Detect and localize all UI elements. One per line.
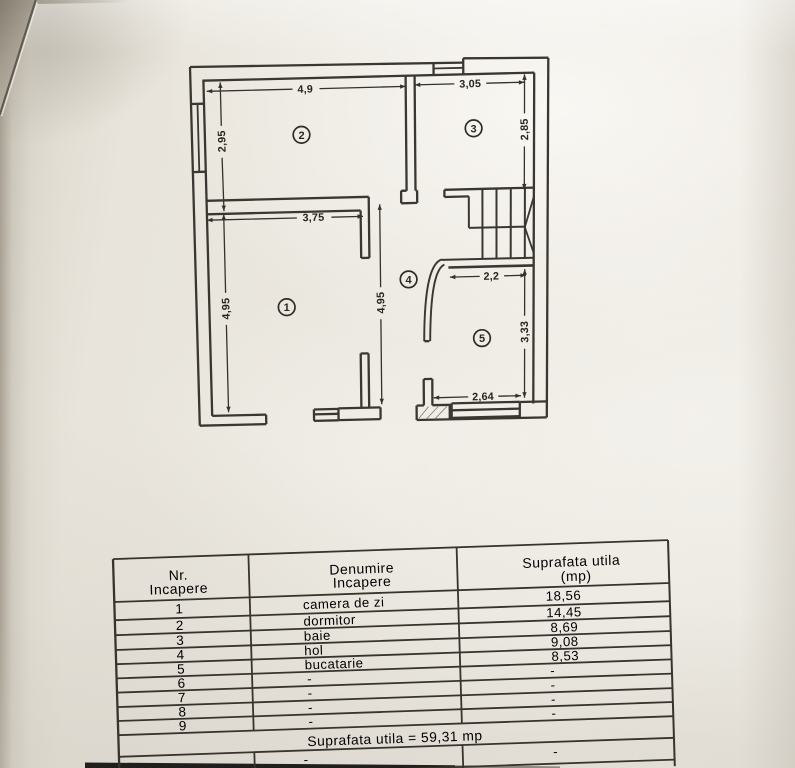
svg-text:9: 9	[179, 718, 188, 733]
svg-text:8,69: 8,69	[550, 619, 578, 635]
svg-text:18,56: 18,56	[545, 588, 581, 604]
svg-text:4: 4	[406, 274, 413, 286]
svg-text:1: 1	[284, 302, 290, 314]
svg-text:4,95: 4,95	[220, 298, 233, 320]
svg-text:5: 5	[177, 661, 186, 676]
svg-text:-: -	[303, 752, 309, 767]
svg-text:3,75: 3,75	[302, 212, 324, 225]
svg-text:2,64: 2,64	[472, 391, 494, 404]
svg-text:Incapere: Incapere	[333, 573, 392, 591]
svg-text:Incapere: Incapere	[149, 580, 208, 598]
svg-text:1: 1	[175, 601, 184, 616]
svg-text:-: -	[551, 692, 556, 707]
svg-text:-: -	[550, 677, 555, 692]
svg-text:3,05: 3,05	[459, 78, 481, 91]
svg-text:hol: hol	[304, 643, 324, 659]
svg-text:(mp): (mp)	[560, 567, 591, 584]
svg-text:2,85: 2,85	[519, 118, 532, 140]
svg-text:2: 2	[176, 618, 185, 633]
svg-text:4,9: 4,9	[297, 83, 313, 95]
svg-text:-: -	[550, 663, 555, 678]
svg-text:-: -	[551, 706, 556, 721]
svg-text:5: 5	[479, 333, 485, 345]
svg-text:2,95: 2,95	[216, 130, 229, 152]
svg-text:-: -	[307, 671, 313, 686]
svg-text:7: 7	[178, 690, 187, 705]
svg-text:2: 2	[298, 130, 304, 142]
svg-text:-: -	[308, 700, 314, 715]
svg-text:camera de zi: camera de zi	[303, 594, 385, 612]
svg-text:4,95: 4,95	[375, 292, 388, 314]
svg-text:-: -	[307, 686, 313, 701]
svg-text:baie: baie	[304, 628, 331, 644]
svg-text:-: -	[553, 744, 559, 759]
svg-text:8,53: 8,53	[551, 648, 579, 664]
svg-text:4: 4	[176, 647, 185, 662]
svg-text:bucatarie: bucatarie	[304, 655, 363, 672]
svg-text:2,2: 2,2	[483, 270, 499, 282]
svg-text:-: -	[308, 714, 314, 729]
svg-text:3: 3	[176, 633, 185, 648]
svg-text:14,45: 14,45	[546, 604, 582, 620]
svg-text:8: 8	[178, 704, 187, 719]
svg-text:3: 3	[471, 123, 477, 135]
svg-text:3,33: 3,33	[519, 321, 532, 343]
svg-text:6: 6	[177, 676, 186, 691]
svg-text:dormitor: dormitor	[303, 612, 356, 629]
